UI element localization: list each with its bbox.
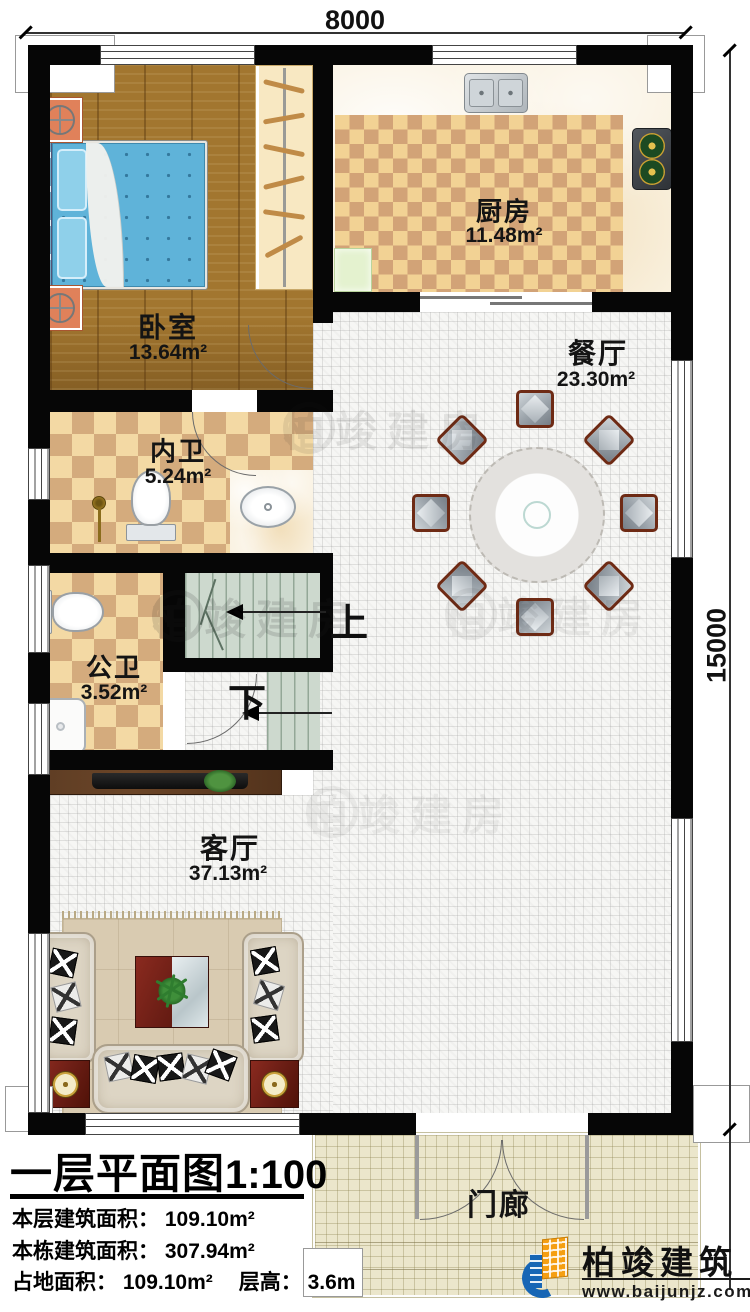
chair-seat xyxy=(521,603,549,631)
living-area: 37.13m² xyxy=(189,862,267,886)
kitchen-label: 厨房 xyxy=(476,192,532,229)
wall-bedroom-bottom xyxy=(28,390,192,412)
brand-name: 柏竣建筑 xyxy=(582,1236,738,1284)
window-kitchen-top xyxy=(432,45,577,65)
wall-bath-divider xyxy=(28,553,333,573)
kitchen-sliding-door xyxy=(420,296,522,299)
brand-logo-icon xyxy=(520,1236,574,1298)
sofa-cushion xyxy=(48,948,79,979)
chair-seat xyxy=(417,499,445,527)
plan-scale: 1:100 xyxy=(225,1153,327,1198)
dining-area: 23.30m² xyxy=(557,368,635,392)
chair-seat xyxy=(521,395,549,423)
stair-up-label: 上 xyxy=(330,592,368,647)
window-dining-right xyxy=(671,360,693,558)
stair-down-arrow-line xyxy=(256,712,332,714)
stove-burner-icon xyxy=(639,133,665,159)
kitchen-sink-basin xyxy=(469,79,494,107)
washbasin-drain xyxy=(264,503,272,511)
wall-bottom xyxy=(300,1113,416,1135)
wall-bedroom-bottom xyxy=(257,390,333,412)
dining-chair xyxy=(620,494,658,532)
inner-bath-area: 5.24m² xyxy=(145,465,212,489)
window-living-right xyxy=(671,818,693,1042)
stair-up-arrow-line xyxy=(240,611,326,613)
floor-plan: 上 下 卧室 13.64m² 厨房 11.48m² 内卫 5.24m² 餐厅 2… xyxy=(0,0,750,1312)
porch-door-frame xyxy=(585,1135,589,1219)
wall-bedroom-right xyxy=(313,65,333,323)
title-underline xyxy=(10,1194,304,1199)
window-inner-bath-left xyxy=(28,448,50,500)
bedroom-label: 卧室 xyxy=(138,306,198,346)
dimension-height: 15000 xyxy=(702,601,733,691)
chair-seat xyxy=(599,430,619,450)
floor-height-line: 层高： 3.6m xyxy=(239,1266,356,1296)
wall-kitchen-bottom xyxy=(333,292,420,312)
porch-door-frame xyxy=(415,1135,419,1219)
sofa-cushion xyxy=(48,1016,77,1045)
brand-logo: 柏竣建筑 www.baijunjz.com xyxy=(520,1236,750,1298)
window-left xyxy=(28,703,50,775)
dimension-extension-box xyxy=(693,1085,750,1143)
sofa-cushion xyxy=(250,1014,279,1043)
window-living-left xyxy=(28,933,50,1113)
sofa-cushion xyxy=(130,1054,160,1084)
table-lamp-icon xyxy=(52,1071,79,1098)
dining-chair xyxy=(516,598,554,636)
stove-burner-icon xyxy=(639,159,665,185)
rug-fringe xyxy=(62,911,282,919)
public-bath-area: 3.52m² xyxy=(81,681,148,705)
chair-seat xyxy=(452,430,472,450)
wall-bottom xyxy=(588,1113,693,1135)
wall-stair-divider xyxy=(163,658,323,672)
dining-chair xyxy=(412,494,450,532)
brand-text-block: 柏竣建筑 www.baijunjz.com xyxy=(582,1236,750,1298)
living-label: 客厅 xyxy=(200,827,260,867)
building-area-line: 本栋建筑面积： 307.94m² xyxy=(12,1235,255,1265)
bed-pillow xyxy=(57,149,87,211)
dimension-line-right xyxy=(729,50,731,1290)
toilet-icon xyxy=(52,592,104,632)
stair-upper-flight xyxy=(185,573,320,658)
dining-table-center xyxy=(523,501,551,529)
page-title: 一层平面图 xyxy=(10,1140,225,1201)
stair-down-label: 下 xyxy=(228,672,266,727)
bed-pillow xyxy=(57,217,87,279)
wall-bottom xyxy=(28,1113,85,1135)
chair-seat xyxy=(625,499,653,527)
window-public-bath-left xyxy=(28,565,50,653)
dining-label: 餐厅 xyxy=(568,332,628,372)
kitchen-cabinet xyxy=(334,248,372,292)
toilet-brush-handle xyxy=(98,508,101,542)
inner-bath-label: 内卫 xyxy=(150,432,206,469)
bedroom-area: 13.64m² xyxy=(129,341,207,365)
wall-kitchen-bottom xyxy=(592,292,671,312)
land-area-row: 占地面积： 109.10m² 层高： 3.6m xyxy=(12,1266,355,1296)
brand-website: www.baijunjz.com xyxy=(582,1278,750,1302)
stair-lower-flight xyxy=(267,672,320,750)
plant-icon xyxy=(204,770,236,792)
window-living-bottom xyxy=(85,1113,300,1135)
toilet-tank xyxy=(126,524,176,541)
shower-drain xyxy=(56,722,65,731)
kitchen-area: 11.48m² xyxy=(465,224,542,248)
kitchen-sliding-door xyxy=(490,302,592,305)
dining-chair xyxy=(516,390,554,428)
floor-area-line: 本层建筑面积： 109.10m² xyxy=(12,1203,255,1233)
porch-label: 门廊 xyxy=(467,1180,531,1224)
stair-up-arrow-icon xyxy=(226,604,243,620)
land-area-line: 占地面积： 109.10m² xyxy=(12,1266,213,1296)
chair-seat xyxy=(452,576,472,596)
public-bath-label: 公卫 xyxy=(86,648,142,685)
sofa-cushion xyxy=(250,946,280,976)
table-lamp-icon xyxy=(261,1071,288,1098)
wall-stair-bottom xyxy=(28,750,333,770)
wardrobe-rod xyxy=(283,68,286,287)
kitchen-sink-basin xyxy=(498,79,523,107)
window-bedroom-top xyxy=(100,45,255,65)
chair-seat xyxy=(599,576,619,596)
title-row: 一层平面图 1:100 xyxy=(10,1140,327,1201)
dimension-line-top xyxy=(25,32,685,34)
